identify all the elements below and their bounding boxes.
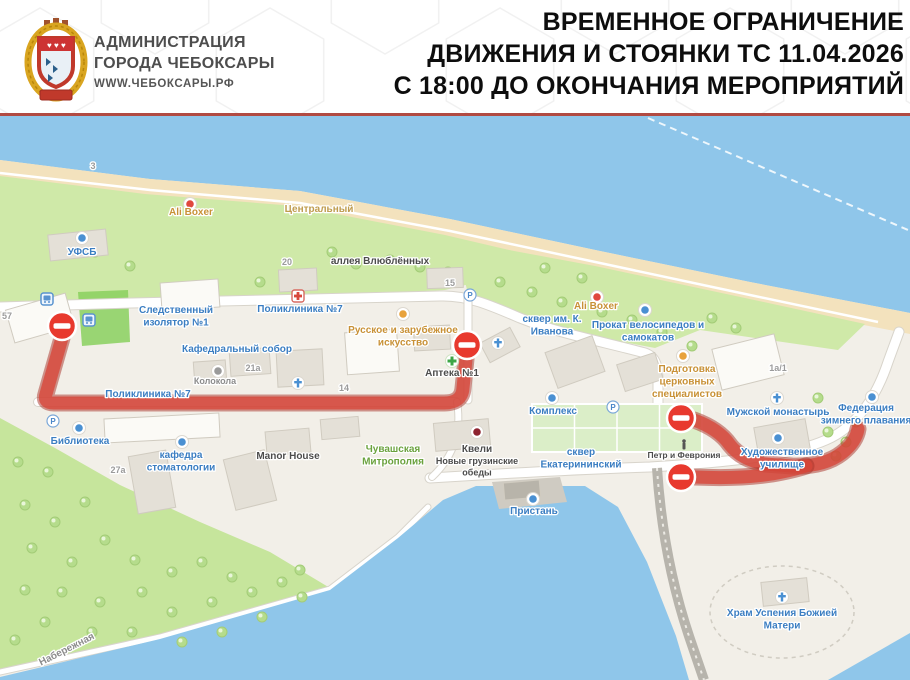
map-label: Кафедральный собор bbox=[182, 343, 292, 355]
map-label: 21а bbox=[245, 363, 261, 373]
map-label: Поликлиника №7 bbox=[105, 389, 191, 400]
church-icon bbox=[771, 392, 784, 405]
church-icon bbox=[776, 591, 789, 604]
church-icon bbox=[778, 595, 786, 597]
map-label: Поликлиника №7 bbox=[257, 304, 343, 315]
dot-icon bbox=[527, 493, 540, 506]
poi-icon bbox=[529, 495, 537, 503]
statue-icon bbox=[682, 439, 686, 443]
svg-text:♥: ♥ bbox=[54, 41, 59, 50]
building bbox=[278, 268, 317, 292]
tree bbox=[100, 535, 110, 545]
dot-icon bbox=[772, 432, 785, 445]
cheboksary-coat-of-arms: ♥ ♥ ♥ bbox=[24, 16, 88, 104]
tree bbox=[169, 609, 173, 613]
map-label: Комплекс bbox=[529, 406, 577, 417]
bus-stop-icon bbox=[44, 301, 46, 303]
tree bbox=[733, 325, 737, 329]
map-label: Комплекс bbox=[529, 406, 577, 417]
bus-stop-icon bbox=[86, 322, 88, 324]
dot-icon bbox=[176, 436, 189, 449]
map-label: Петр и Феврония bbox=[648, 450, 721, 460]
tree bbox=[22, 502, 26, 506]
map-label: Иванова bbox=[531, 327, 574, 338]
dot-icon bbox=[471, 426, 484, 439]
map-label: 27а bbox=[110, 465, 126, 475]
map-label: 14 bbox=[339, 383, 349, 393]
tree bbox=[127, 263, 131, 267]
tree bbox=[257, 279, 261, 283]
tree bbox=[80, 497, 90, 507]
parking-icon: P bbox=[50, 417, 56, 426]
map-label: Кафедральный собор bbox=[182, 343, 292, 355]
tree bbox=[257, 612, 267, 622]
tree bbox=[825, 429, 829, 433]
tree bbox=[27, 543, 37, 553]
tree bbox=[197, 557, 207, 567]
map-label: Квели bbox=[462, 444, 492, 455]
poi-icon bbox=[399, 310, 407, 318]
tree bbox=[209, 599, 213, 603]
bus-icon bbox=[41, 293, 53, 305]
poster-title: ВРЕМЕННОЕ ОГРАНИЧЕНИЕ ДВИЖЕНИЯ И СТОЯНКИ… bbox=[394, 6, 904, 102]
building bbox=[320, 416, 360, 439]
map-label: Ali Boxer bbox=[574, 301, 618, 312]
tree bbox=[125, 261, 135, 271]
tree bbox=[40, 617, 50, 627]
map-label: 15 bbox=[445, 278, 455, 288]
tree bbox=[299, 594, 303, 598]
map-label: Прокат велосипедов и bbox=[592, 320, 704, 331]
map-label: Следственный bbox=[139, 305, 213, 316]
tree bbox=[69, 559, 73, 563]
org-line2: ГОРОДА ЧЕБОКСАРЫ bbox=[94, 53, 275, 74]
tree bbox=[20, 500, 30, 510]
church-icon bbox=[292, 377, 305, 390]
map-label: Петр и Феврония bbox=[648, 450, 721, 460]
tree bbox=[45, 469, 49, 473]
bus-icon bbox=[83, 314, 95, 326]
map-label: Библиотека bbox=[51, 435, 110, 447]
map-label: Мужской монастырь bbox=[727, 407, 830, 418]
no-entry-sign bbox=[667, 404, 695, 432]
tree bbox=[67, 557, 77, 567]
church-icon bbox=[494, 341, 502, 343]
map-label: сквер им. К. bbox=[522, 314, 581, 325]
poi-icon bbox=[641, 306, 649, 314]
tree bbox=[127, 627, 137, 637]
bus-stop-icon bbox=[86, 317, 93, 322]
map-label: 21а bbox=[245, 363, 261, 373]
tree bbox=[12, 637, 16, 641]
map-label: 1а/1 bbox=[769, 363, 787, 373]
map-label: самокатов bbox=[622, 333, 674, 344]
tree bbox=[277, 577, 287, 587]
map-label: Подготовкацерковныхспециалистов bbox=[652, 364, 722, 400]
map-label: Федерация bbox=[838, 403, 894, 414]
map-label: Чувашская bbox=[366, 444, 421, 455]
tree bbox=[167, 607, 177, 617]
no-entry-sign bbox=[673, 474, 690, 480]
tree bbox=[297, 567, 301, 571]
map-label: Аптека №1 bbox=[425, 368, 479, 379]
map-label: 20 bbox=[282, 257, 292, 267]
map-label: кафедра bbox=[160, 449, 203, 461]
dot-icon bbox=[73, 422, 86, 435]
pharmacy-icon bbox=[446, 355, 459, 368]
bus-stop-icon bbox=[90, 322, 92, 324]
tree bbox=[329, 249, 333, 253]
clinic-icon bbox=[292, 290, 304, 302]
map-label: 15 bbox=[445, 278, 455, 288]
bus-stop-icon bbox=[44, 296, 51, 301]
svg-text:♥: ♥ bbox=[47, 41, 52, 50]
tree bbox=[82, 499, 86, 503]
map-label: Аптека №1 bbox=[425, 368, 479, 379]
map-label: сквер им. К.Иванова bbox=[522, 314, 581, 338]
tree bbox=[219, 629, 223, 633]
statue-icon bbox=[682, 439, 686, 449]
dot-icon bbox=[397, 308, 410, 321]
tree bbox=[130, 555, 140, 565]
map-label: УФСБ bbox=[68, 247, 97, 258]
tree bbox=[687, 341, 697, 351]
poi-icon bbox=[868, 393, 876, 401]
map-label: Художественное bbox=[741, 447, 824, 458]
tree bbox=[179, 639, 183, 643]
statue-icon bbox=[683, 443, 686, 450]
map-label: Новые грузинские bbox=[436, 456, 518, 466]
tree bbox=[22, 587, 26, 591]
church-icon bbox=[492, 337, 505, 350]
tree bbox=[297, 592, 307, 602]
dot-icon bbox=[866, 391, 879, 404]
map-label: зимнего плавания bbox=[821, 416, 910, 427]
map-label: Матери bbox=[764, 621, 801, 632]
poi-icon bbox=[593, 293, 601, 301]
tree bbox=[259, 614, 263, 618]
tree bbox=[689, 343, 693, 347]
org-website: WWW.ЧЕБОКСАРЫ.РФ bbox=[94, 74, 275, 94]
tree bbox=[815, 395, 819, 399]
tree bbox=[29, 545, 33, 549]
tree bbox=[229, 574, 233, 578]
map-label: 20 bbox=[282, 257, 292, 267]
no-entry-sign bbox=[667, 463, 695, 491]
map-label: Manor House bbox=[256, 451, 320, 462]
title-line3: С 18:00 ДО ОКОНЧАНИЯ МЕРОПРИЯТИЙ bbox=[394, 70, 904, 102]
no-entry-sign bbox=[673, 415, 690, 421]
tree bbox=[709, 315, 713, 319]
no-entry-sign bbox=[54, 323, 71, 329]
map-label: Русское и зарубежное bbox=[348, 324, 458, 336]
map-label: Поликлиника №7 bbox=[257, 304, 343, 315]
tree bbox=[813, 393, 823, 403]
map-label: Центральный bbox=[285, 204, 354, 215]
poi-icon bbox=[78, 234, 86, 242]
no-entry-sign bbox=[48, 312, 76, 340]
map-label: Следственныйизолятор №1 bbox=[139, 305, 213, 329]
map-label: Квели bbox=[462, 444, 492, 455]
tree bbox=[167, 567, 177, 577]
map-label: специалистов bbox=[652, 389, 722, 400]
map-label: 57 bbox=[2, 311, 12, 321]
tree bbox=[495, 277, 505, 287]
map-label: Мужской монастырь bbox=[727, 407, 830, 418]
map-label: церковных bbox=[659, 377, 715, 388]
dot-icon bbox=[546, 392, 559, 405]
tree bbox=[50, 517, 60, 527]
tree bbox=[707, 313, 717, 323]
tree bbox=[527, 287, 537, 297]
tree bbox=[255, 277, 265, 287]
tree bbox=[577, 273, 587, 283]
map-label: Ali Boxer bbox=[574, 301, 618, 312]
map-label: 27а bbox=[110, 465, 126, 475]
map-label: аллея Влюблённых bbox=[331, 255, 430, 267]
tree bbox=[57, 587, 67, 597]
tree bbox=[42, 619, 46, 623]
tree bbox=[169, 569, 173, 573]
map-label: Manor House bbox=[256, 451, 320, 462]
poi-icon bbox=[679, 352, 687, 360]
tree bbox=[529, 289, 533, 293]
header: ♥ ♥ ♥ АДМИНИСТРАЦИЯ ГОРОДА ЧЕБОКСАРЫ WWW… bbox=[0, 0, 910, 113]
map-label: Пристань bbox=[510, 506, 558, 517]
tree bbox=[249, 589, 253, 593]
tree bbox=[139, 589, 143, 593]
tree bbox=[557, 297, 567, 307]
dot-icon bbox=[677, 350, 690, 363]
map-label: стоматологии bbox=[147, 463, 216, 474]
tree bbox=[97, 599, 101, 603]
map-label: Храм Успения Божией bbox=[727, 608, 837, 619]
tree bbox=[132, 557, 136, 561]
poster: PPPУФСБСледственныйизолятор №1Поликлиник… bbox=[0, 0, 910, 680]
map-label: 1а/1 bbox=[769, 363, 787, 373]
map-label: сквер bbox=[567, 447, 595, 458]
dot-icon bbox=[639, 304, 652, 317]
parking-icon: P bbox=[47, 415, 59, 427]
org-line1: АДМИНИСТРАЦИЯ bbox=[94, 32, 275, 53]
title-line1: ВРЕМЕННОЕ ОГРАНИЧЕНИЕ bbox=[394, 6, 904, 38]
map-label: аллея Влюблённых bbox=[331, 255, 430, 267]
map-label: 3 bbox=[90, 161, 95, 171]
map-label: Ali Boxer bbox=[169, 207, 213, 218]
map-label: обеды bbox=[462, 467, 492, 477]
church-icon bbox=[773, 396, 781, 398]
tree bbox=[207, 597, 217, 607]
tree bbox=[13, 457, 23, 467]
tree bbox=[137, 587, 147, 597]
tree bbox=[295, 565, 305, 575]
tree bbox=[95, 597, 105, 607]
title-line2: ДВИЖЕНИЯ И СТОЯНКИ ТС 11.04.2026 bbox=[394, 38, 904, 70]
poi-icon bbox=[774, 434, 782, 442]
tree bbox=[559, 299, 563, 303]
tree bbox=[20, 585, 30, 595]
svg-text:♥: ♥ bbox=[61, 41, 66, 50]
header-separator bbox=[0, 113, 910, 116]
tree bbox=[59, 589, 63, 593]
parking-icon: P bbox=[467, 291, 473, 300]
map-label: Екатерининский bbox=[540, 460, 621, 471]
map-label: ЧувашскаяМитрополия bbox=[362, 444, 424, 468]
tree bbox=[542, 265, 546, 269]
tree bbox=[129, 629, 133, 633]
bus-stop-icon bbox=[48, 301, 50, 303]
poi-icon bbox=[473, 428, 481, 436]
tree bbox=[217, 627, 227, 637]
building bbox=[345, 329, 400, 375]
map-label: Колокола bbox=[194, 376, 237, 386]
map-label: Митрополия bbox=[362, 457, 424, 468]
map-label: училище bbox=[760, 460, 804, 471]
parking-icon: P bbox=[610, 403, 616, 412]
org-name: АДМИНИСТРАЦИЯ ГОРОДА ЧЕБОКСАРЫ WWW.ЧЕБОК… bbox=[94, 32, 275, 94]
tree bbox=[177, 637, 187, 647]
map-label: 14 bbox=[339, 383, 349, 393]
no-entry-sign bbox=[459, 342, 476, 348]
poi-icon bbox=[214, 367, 222, 375]
map-label: УФСБ bbox=[68, 247, 97, 258]
tree bbox=[43, 467, 53, 477]
clinic-icon bbox=[294, 295, 302, 298]
map-label: Ali Boxer bbox=[169, 207, 213, 218]
map-label: искусство bbox=[378, 338, 428, 349]
parking-icon: P bbox=[464, 289, 476, 301]
pharmacy-cross-icon bbox=[448, 360, 457, 363]
church-icon bbox=[294, 381, 302, 383]
poi-icon bbox=[178, 438, 186, 446]
map-label: Пристань bbox=[510, 506, 558, 517]
tree bbox=[102, 537, 106, 541]
tree bbox=[199, 559, 203, 563]
map-label: Центральный bbox=[285, 204, 354, 215]
parking-icon: P bbox=[607, 401, 619, 413]
tree bbox=[227, 572, 237, 582]
map-label: 3 bbox=[90, 161, 95, 171]
map-label: изолятор №1 bbox=[143, 318, 209, 329]
poi-icon bbox=[75, 424, 83, 432]
tree bbox=[52, 519, 56, 523]
map-label: Колокола bbox=[194, 376, 237, 386]
tree bbox=[279, 579, 283, 583]
map-label: Поликлиника №7 bbox=[105, 389, 191, 400]
tree bbox=[497, 279, 501, 283]
map-label: Подготовка bbox=[659, 364, 716, 375]
tree bbox=[823, 427, 833, 437]
poi-icon bbox=[548, 394, 556, 402]
tree bbox=[579, 275, 583, 279]
dot-icon bbox=[76, 232, 89, 245]
tree bbox=[731, 323, 741, 333]
hexagon-decor bbox=[906, 8, 910, 113]
tree bbox=[540, 263, 550, 273]
tree bbox=[15, 459, 19, 463]
map-label: 57 bbox=[2, 311, 12, 321]
map-label: Библиотека bbox=[51, 435, 110, 447]
tree bbox=[10, 635, 20, 645]
tree bbox=[247, 587, 257, 597]
